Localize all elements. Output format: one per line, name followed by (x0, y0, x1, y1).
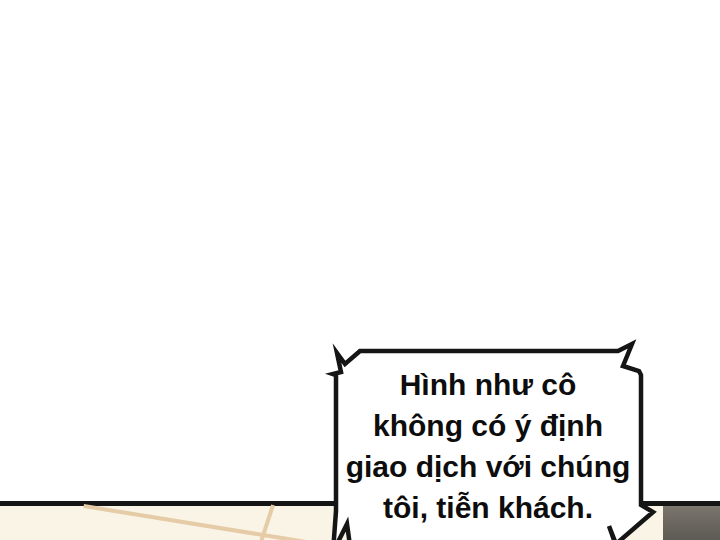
dialogue-line: Hình như cô (338, 364, 638, 405)
comic-panel: Hình như cô không có ý định giao dịch vớ… (0, 0, 720, 540)
dialogue-line: không có ý định (338, 405, 638, 446)
dialogue-line: tôi, tiễn khách. (338, 487, 638, 528)
speech-bubble-text: Hình như cô không có ý định giao dịch vớ… (338, 364, 638, 528)
dialogue-line: giao dịch với chúng (338, 446, 638, 487)
